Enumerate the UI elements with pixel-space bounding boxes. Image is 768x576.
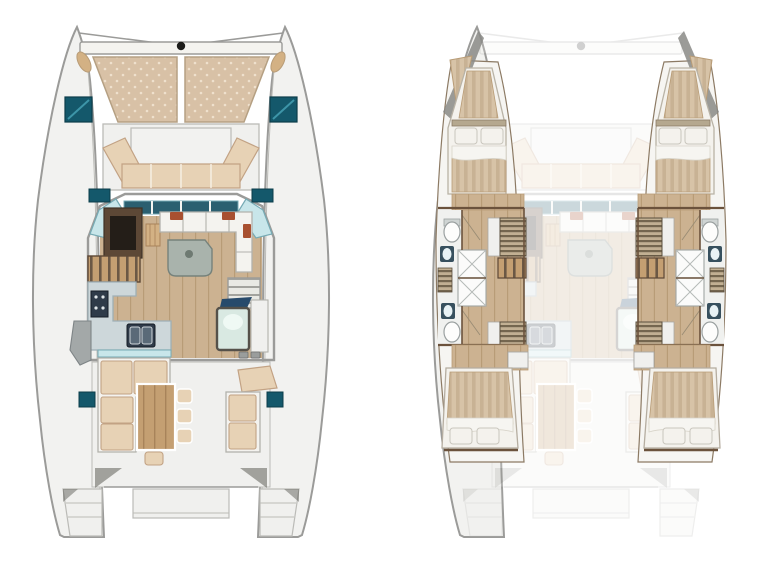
cockpit-hatch-port — [79, 392, 95, 407]
toilet-forward — [444, 222, 460, 242]
nightstand — [508, 352, 528, 368]
forward-berth-mattress — [452, 158, 506, 192]
stern-platforms — [63, 489, 299, 536]
trampoline — [74, 50, 288, 122]
sink-basin-1 — [130, 327, 140, 344]
saloon — [70, 194, 274, 365]
aft-pillow-2 — [477, 428, 499, 444]
midship-section — [438, 194, 526, 354]
table-detail — [185, 250, 193, 258]
latch-1 — [239, 352, 248, 358]
cooktop — [91, 291, 108, 317]
berth-shelf — [452, 120, 506, 126]
bowsprit-fitting — [177, 42, 185, 50]
forward-pillow-2 — [481, 128, 503, 144]
stool-1 — [177, 389, 192, 403]
stool-2 — [177, 409, 192, 423]
cockpit-table — [137, 384, 175, 450]
slat-chair — [146, 224, 160, 246]
helm-seat — [238, 366, 277, 392]
trampoline-port-panel — [93, 57, 177, 122]
washbasin-aft-bowl — [444, 305, 453, 317]
aft-pillow-1 — [450, 428, 472, 444]
wardrobe-louver-fwd — [500, 218, 526, 256]
saloon-cabinet-starboard — [251, 300, 268, 352]
cockpit-hatch-starboard — [267, 392, 283, 407]
chart-table — [168, 240, 212, 276]
glass-door-highlight — [223, 314, 243, 330]
sofa-cushion-1 — [170, 212, 183, 220]
toilet-aft — [444, 322, 460, 342]
bench-cushion-6 — [229, 423, 256, 449]
sink-basin-2 — [142, 327, 152, 344]
lower-deck-plan — [433, 27, 768, 537]
aft-berth-mattress — [447, 372, 513, 424]
cooktop-knob-3 — [94, 306, 97, 309]
stool-3 — [177, 429, 192, 443]
bridgedeck-furniture — [63, 124, 299, 536]
side-hatch-port — [89, 189, 110, 202]
bench-cushion-1 — [101, 361, 132, 394]
hull-cabins-port — [436, 31, 528, 462]
cooktop-knob-2 — [101, 295, 104, 298]
washbasin-fwd-bowl — [443, 248, 452, 260]
bench-cushion-4 — [101, 424, 133, 450]
galley-window — [98, 350, 171, 357]
side-hatch-starboard — [252, 189, 273, 202]
latch-2 — [251, 352, 260, 358]
shelf-fwd — [488, 218, 500, 256]
forward-duvet — [452, 146, 506, 160]
sofa-cushion-2 — [222, 212, 235, 220]
cooktop-knob-1 — [94, 295, 97, 298]
tv-screen — [110, 216, 136, 250]
catamaran-floor-plans — [0, 0, 768, 576]
main-deck-plan — [33, 27, 329, 537]
hull-steps — [498, 258, 526, 278]
cockpit — [92, 358, 277, 488]
stool-aft — [145, 452, 163, 465]
sofa-cushion-3 — [243, 224, 251, 238]
bench-cushion-3 — [101, 397, 133, 423]
bow-crossbeam-group — [79, 33, 283, 54]
floor-plan-drawing — [0, 0, 768, 576]
stern-center-platform — [133, 489, 229, 518]
bench-cushion-5 — [229, 395, 256, 421]
trampoline-starboard-panel — [185, 57, 269, 122]
forward-pillow-1 — [455, 128, 477, 144]
cooktop-knob-4 — [101, 306, 104, 309]
foredeck-lounge — [103, 124, 259, 190]
ghost-rig — [479, 33, 683, 54]
foredeck-well — [131, 128, 231, 168]
hull-cabins-starboard — [634, 31, 726, 462]
companionway-steps-port — [88, 256, 140, 282]
locker-louver-outer — [438, 268, 452, 292]
